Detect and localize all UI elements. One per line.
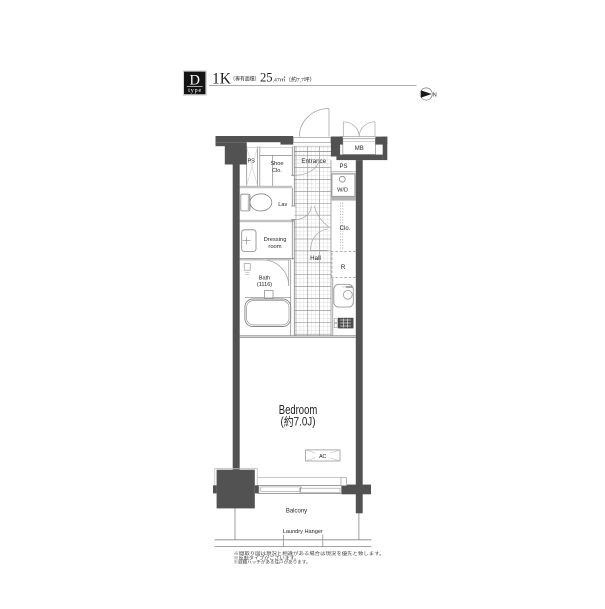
svg-text:Lav: Lav bbox=[278, 202, 287, 208]
svg-text:N: N bbox=[433, 92, 437, 98]
svg-text:AC: AC bbox=[319, 454, 326, 460]
svg-text:W/D: W/D bbox=[337, 188, 348, 194]
svg-text:MB: MB bbox=[355, 146, 364, 152]
svg-text:Clo.: Clo. bbox=[340, 226, 351, 232]
svg-text:(1116): (1116) bbox=[257, 282, 272, 288]
svg-text:Balcony: Balcony bbox=[286, 508, 307, 514]
svg-text:.47㎡（約7.7坪）: .47㎡（約7.7坪） bbox=[273, 75, 316, 83]
svg-text:Dressing: Dressing bbox=[264, 237, 287, 243]
svg-text:type: type bbox=[188, 88, 201, 94]
svg-text:Shoe: Shoe bbox=[270, 161, 283, 167]
svg-text:※避難ハッチがある住戸があります。: ※避難ハッチがある住戸があります。 bbox=[234, 559, 311, 566]
svg-text:PS: PS bbox=[339, 164, 347, 170]
svg-text:25: 25 bbox=[260, 71, 273, 85]
svg-text:PS: PS bbox=[247, 159, 255, 165]
svg-text:Entrance: Entrance bbox=[301, 158, 326, 165]
svg-text:Clo.: Clo. bbox=[272, 168, 282, 174]
svg-text:R: R bbox=[341, 264, 346, 271]
svg-text:(約7.0J): (約7.0J) bbox=[281, 414, 316, 428]
svg-text:〔専有面積〕: 〔専有面積〕 bbox=[230, 76, 259, 83]
svg-text:Hall: Hall bbox=[310, 255, 321, 262]
svg-text:Bedroom: Bedroom bbox=[279, 402, 318, 417]
svg-text:Bath: Bath bbox=[259, 276, 271, 282]
svg-text:room: room bbox=[268, 244, 281, 250]
svg-text:Laundry Hanger: Laundry Hanger bbox=[283, 529, 323, 535]
